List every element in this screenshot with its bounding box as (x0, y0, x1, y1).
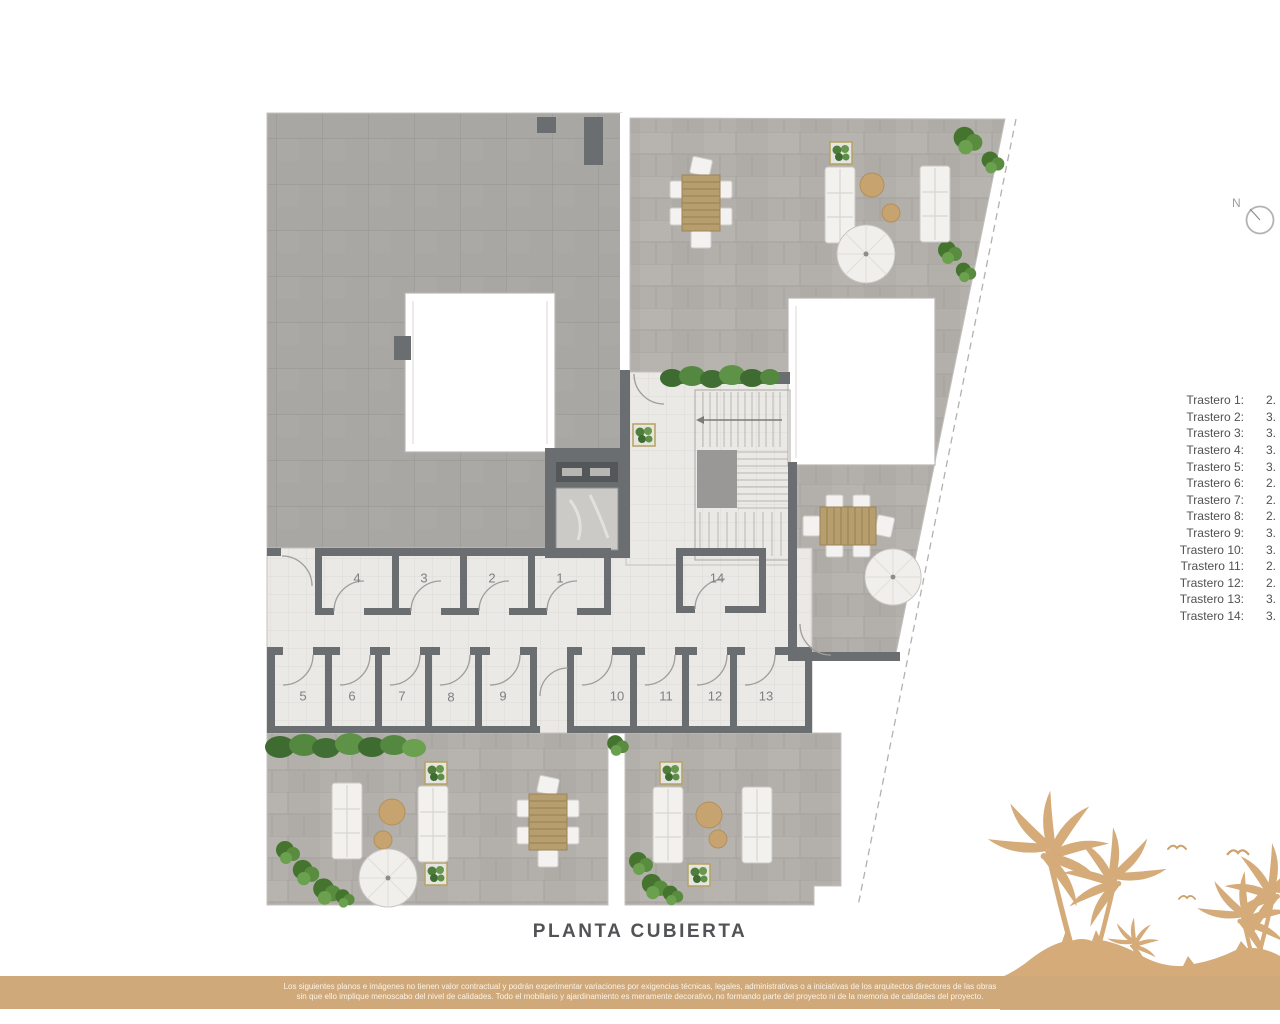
storage-value: 3. (1266, 592, 1276, 606)
floor-plan-drawing (0, 0, 1280, 1024)
bird-icon (1228, 850, 1249, 854)
planter-box (425, 762, 447, 784)
planter-box (830, 142, 852, 164)
roof-vent-small (537, 117, 556, 133)
sofa (920, 166, 950, 242)
storage-value: 3. (1266, 526, 1276, 540)
storage-value: 3. (1266, 410, 1276, 424)
storage-row: Trastero 12:2. (1178, 575, 1276, 592)
parasol (837, 225, 895, 283)
storage-label: Trastero 2: (1178, 410, 1244, 424)
bird-icon (1179, 896, 1195, 899)
parasol (865, 549, 921, 605)
room-number: 6 (348, 689, 355, 704)
roof-vent-large (584, 117, 603, 165)
room-number: 4 (353, 571, 360, 586)
storage-row: Trastero 5:3. (1178, 458, 1276, 475)
room-number: 3 (420, 571, 427, 586)
disclaimer-line-2: sin que ello implique menoscabo del nive… (0, 992, 1280, 1002)
storage-value: 2. (1266, 576, 1276, 590)
roof-gap-strip (620, 113, 629, 371)
room-number: 1 (556, 571, 563, 586)
sofa (653, 787, 683, 863)
storage-value: 3. (1266, 426, 1276, 440)
storage-row: Trastero 2:3. (1178, 409, 1276, 426)
room-number: 10 (610, 689, 624, 704)
storage-value: 2. (1266, 509, 1276, 523)
floorplan-page: 4 3 2 1 14 5 6 7 8 9 10 11 12 13 N Trast… (0, 0, 1280, 1024)
storage-value: 3. (1266, 543, 1276, 557)
storage-label: Trastero 10: (1178, 543, 1244, 557)
storage-label: Trastero 7: (1178, 493, 1244, 507)
storage-row: Trastero 13:3. (1178, 591, 1276, 608)
storage-value: 3. (1266, 443, 1276, 457)
bird-icon (1168, 846, 1186, 849)
void-left (405, 293, 555, 452)
storage-label: Trastero 11: (1178, 559, 1244, 573)
storage-row: Trastero 1:2. (1178, 392, 1276, 409)
north-compass (1247, 207, 1274, 234)
room-number: 5 (299, 689, 306, 704)
storage-row: Trastero 6:2. (1178, 475, 1276, 492)
compass-north-label: N (1232, 196, 1241, 210)
storage-label: Trastero 13: (1178, 592, 1244, 606)
storage-row: Trastero 8:2. (1178, 508, 1276, 525)
storage-value: 2. (1266, 393, 1276, 407)
elevator (545, 448, 630, 558)
planter-box (660, 762, 682, 784)
storage-row: Trastero 10:3. (1178, 541, 1276, 558)
page-title: PLANTA CUBIERTA (0, 921, 1280, 943)
room-number: 9 (499, 689, 506, 704)
room-number: 7 (398, 689, 405, 704)
storage-row: Trastero 3:3. (1178, 425, 1276, 442)
storage-value: 2. (1266, 476, 1276, 490)
planter-box (425, 863, 447, 885)
parasol (359, 849, 417, 907)
sofa (742, 787, 772, 863)
void-right (788, 298, 935, 465)
sofa (332, 783, 362, 859)
storage-row: Trastero 7:2. (1178, 492, 1276, 509)
storage-label: Trastero 9: (1178, 526, 1244, 540)
storage-row: Trastero 11:2. (1178, 558, 1276, 575)
disclaimer-line-1: Los siguientes planos e imágenes no tien… (0, 982, 1280, 992)
storage-value: 2. (1266, 559, 1276, 573)
storage-row: Trastero 9:3. (1178, 525, 1276, 542)
disclaimer-band: Los siguientes planos e imágenes no tien… (0, 976, 1280, 1009)
storage-label: Trastero 3: (1178, 426, 1244, 440)
storage-label: Trastero 4: (1178, 443, 1244, 457)
storage-label: Trastero 14: (1178, 609, 1244, 623)
room-number: 2 (488, 571, 495, 586)
room-number: 12 (708, 689, 722, 704)
room-number: 11 (659, 689, 673, 704)
planter-box (633, 424, 655, 446)
storage-row: Trastero 4:3. (1178, 442, 1276, 459)
sofa (418, 786, 448, 862)
room-number: 13 (759, 689, 773, 704)
storage-label: Trastero 5: (1178, 460, 1244, 474)
storage-label: Trastero 12: (1178, 576, 1244, 590)
storage-label: Trastero 1: (1178, 393, 1244, 407)
storage-label: Trastero 6: (1178, 476, 1244, 490)
storage-size-list: Trastero 1:2. Trastero 2:3. Trastero 3:3… (1178, 392, 1276, 624)
storage-label: Trastero 8: (1178, 509, 1244, 523)
roof-areas (267, 113, 1005, 905)
storage-value: 2. (1266, 493, 1276, 507)
planter-box (688, 864, 710, 886)
storage-value: 3. (1266, 609, 1276, 623)
room-number: 14 (710, 571, 724, 586)
room-number: 8 (447, 690, 454, 705)
storage-row: Trastero 14:3. (1178, 608, 1276, 625)
storage-value: 3. (1266, 460, 1276, 474)
